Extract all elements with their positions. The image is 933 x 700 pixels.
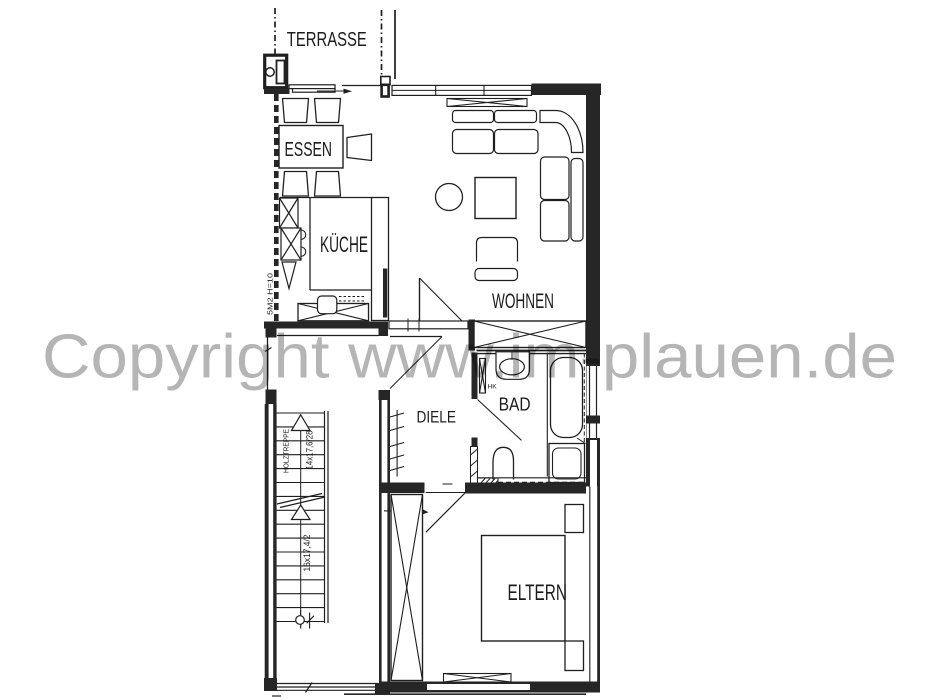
svg-text:16x17,4/2: 16x17,4/2	[302, 535, 313, 572]
svg-text:WOHNEN: WOHNEN	[492, 290, 554, 313]
svg-text:14x17,6/28: 14x17,6/28	[305, 431, 316, 470]
svg-text:BAD: BAD	[499, 394, 531, 414]
svg-text:ESSEN: ESSEN	[285, 139, 333, 161]
svg-text:5M2 H=10: 5M2 H=10	[266, 273, 275, 315]
svg-text:KÜCHE: KÜCHE	[320, 232, 368, 257]
svg-text:Copyright www.im-plauen.de: Copyright www.im-plauen.de	[42, 323, 897, 392]
svg-text:DIELE: DIELE	[417, 408, 457, 427]
svg-text:ELTERN: ELTERN	[508, 580, 568, 605]
svg-text:HOLZTREPPE: HOLZTREPPE	[282, 429, 291, 473]
svg-text:TERRASSE: TERRASSE	[287, 28, 367, 51]
